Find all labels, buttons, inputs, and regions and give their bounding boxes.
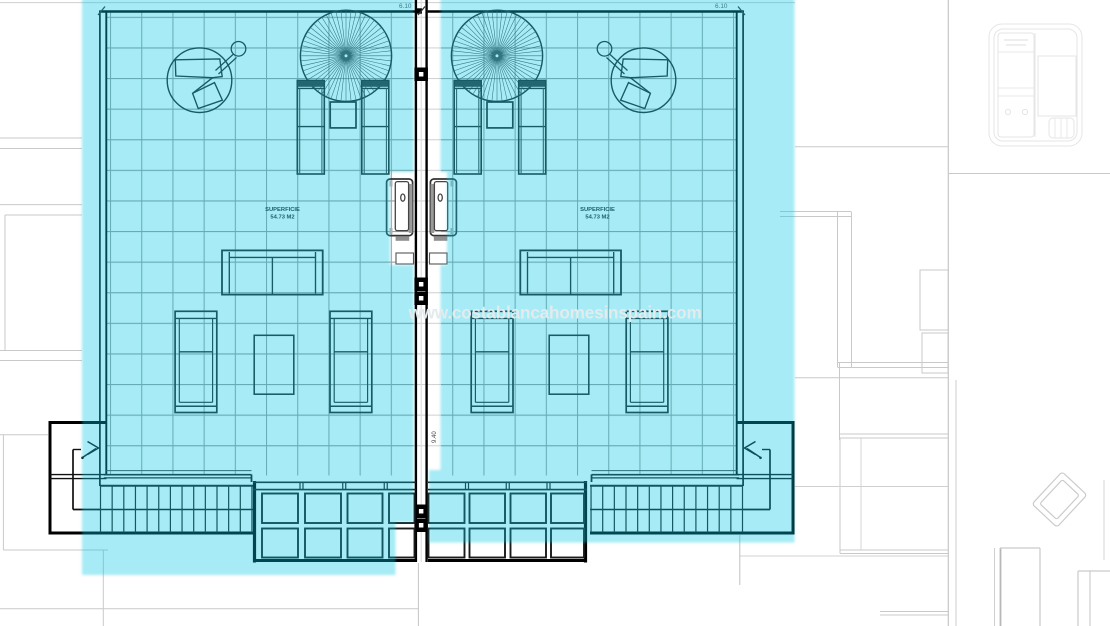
svg-text:www.costablancahomesinspain.co: www.costablancahomesinspain.com [407,303,701,323]
svg-text:9.40: 9.40 [432,431,438,443]
